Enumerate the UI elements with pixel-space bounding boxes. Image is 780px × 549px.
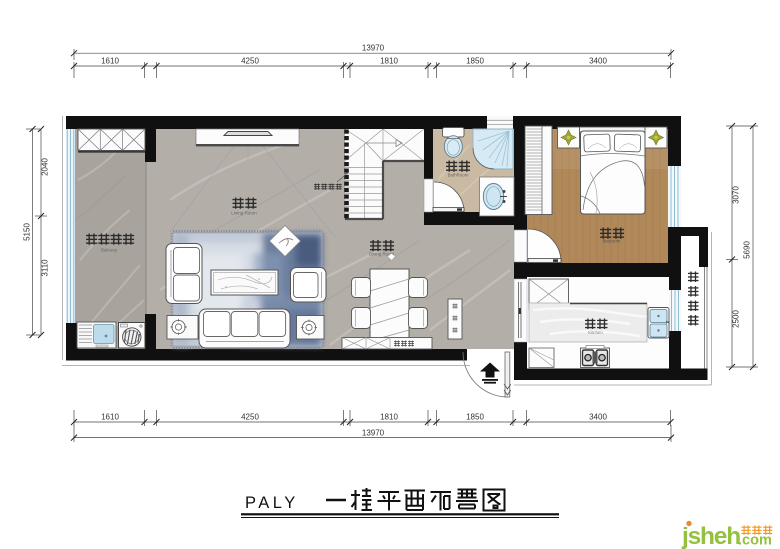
svg-text:4250: 4250 bbox=[241, 57, 259, 66]
svg-text:1610: 1610 bbox=[101, 57, 119, 66]
svg-text:13970: 13970 bbox=[362, 44, 385, 53]
svg-text:5690: 5690 bbox=[743, 241, 752, 259]
svg-text:3400: 3400 bbox=[589, 413, 607, 422]
svg-text:1850: 1850 bbox=[466, 57, 484, 66]
svg-text:3110: 3110 bbox=[41, 259, 50, 277]
svg-text:1810: 1810 bbox=[380, 413, 398, 422]
svg-text:2500: 2500 bbox=[732, 310, 741, 328]
svg-text:4250: 4250 bbox=[241, 413, 259, 422]
svg-text:Living Room: Living Room bbox=[231, 211, 257, 216]
svg-text:3070: 3070 bbox=[732, 186, 741, 204]
svg-text:1810: 1810 bbox=[380, 57, 398, 66]
svg-text:Kitchen: Kitchen bbox=[588, 330, 603, 335]
svg-text:3400: 3400 bbox=[589, 57, 607, 66]
svg-text:1610: 1610 bbox=[101, 413, 119, 422]
svg-text:PALY: PALY bbox=[245, 494, 299, 512]
svg-text:13970: 13970 bbox=[362, 429, 385, 438]
svg-text:1850: 1850 bbox=[466, 413, 484, 422]
svg-text:.com: .com bbox=[738, 533, 772, 549]
svg-text:BathRoom: BathRoom bbox=[448, 173, 469, 178]
svg-text:Balcony: Balcony bbox=[101, 248, 118, 253]
svg-text:5150: 5150 bbox=[23, 223, 32, 241]
svg-text:2040: 2040 bbox=[41, 158, 50, 176]
svg-text:Bedroom: Bedroom bbox=[603, 239, 621, 244]
